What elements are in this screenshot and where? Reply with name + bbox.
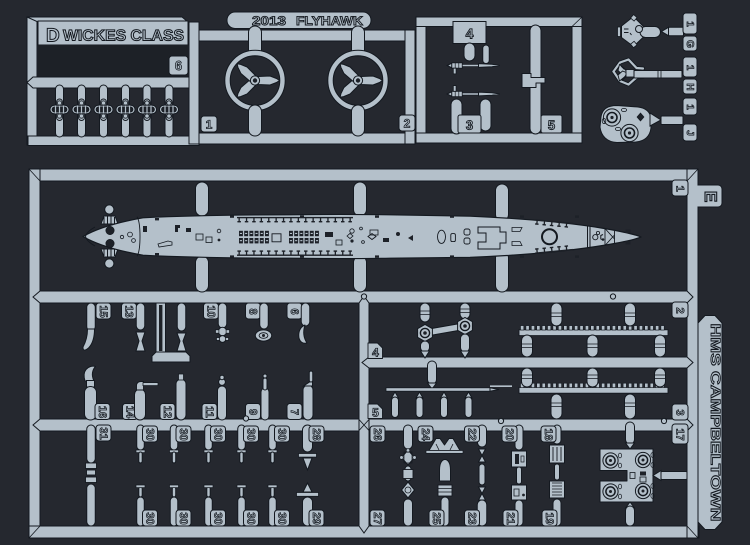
svg-text:1: 1 [684, 104, 695, 110]
svg-text:H: H [684, 83, 695, 90]
svg-text:1: 1 [674, 185, 686, 191]
svg-text:23: 23 [466, 512, 478, 524]
svg-text:13: 13 [123, 305, 135, 317]
svg-text:14: 14 [124, 406, 136, 419]
svg-text:22: 22 [466, 428, 478, 440]
svg-text:30: 30 [276, 428, 288, 440]
svg-text:8: 8 [247, 308, 259, 314]
svg-text:28: 28 [310, 428, 322, 440]
svg-text:5: 5 [372, 406, 379, 420]
svg-text:30: 30 [144, 512, 156, 524]
svg-text:18: 18 [542, 428, 554, 440]
svg-text:9: 9 [247, 409, 259, 415]
svg-text:4: 4 [466, 26, 474, 42]
svg-text:30: 30 [177, 428, 189, 440]
svg-text:2: 2 [674, 307, 686, 313]
svg-text:3: 3 [466, 118, 473, 133]
svg-text:30: 30 [212, 428, 224, 440]
svg-text:24: 24 [419, 428, 431, 441]
svg-text:1: 1 [206, 117, 213, 131]
svg-text:E: E [701, 191, 720, 202]
svg-text:HMS CAMPBELTOWN: HMS CAMPBELTOWN [708, 324, 723, 522]
svg-text:26: 26 [371, 428, 383, 440]
svg-text:31: 31 [97, 427, 109, 439]
svg-text:4: 4 [372, 346, 379, 360]
svg-text:1: 1 [684, 65, 695, 71]
svg-text:2: 2 [404, 116, 411, 130]
svg-text:20: 20 [503, 428, 515, 440]
svg-text:30: 30 [212, 512, 224, 524]
svg-text:6: 6 [175, 58, 182, 73]
svg-text:30: 30 [177, 512, 189, 524]
svg-text:15: 15 [97, 305, 109, 317]
svg-text:27: 27 [371, 512, 383, 524]
svg-text:5: 5 [548, 118, 555, 133]
svg-text:30: 30 [245, 512, 257, 524]
svg-text:25: 25 [430, 512, 442, 524]
svg-text:7: 7 [288, 409, 300, 415]
svg-text:6: 6 [288, 308, 300, 314]
svg-text:J: J [684, 130, 695, 136]
svg-text:G: G [684, 40, 695, 48]
svg-text:12: 12 [161, 406, 173, 418]
svg-text:17: 17 [674, 428, 686, 440]
svg-text:21: 21 [504, 512, 516, 524]
svg-text:11: 11 [203, 406, 215, 418]
svg-text:FLYHAWK: FLYHAWK [296, 14, 363, 28]
svg-text:19: 19 [543, 512, 555, 524]
svg-text:30: 30 [245, 428, 257, 440]
svg-text:10: 10 [205, 305, 217, 317]
svg-text:3: 3 [674, 409, 686, 415]
svg-text:D: D [46, 26, 60, 47]
svg-text:1: 1 [684, 21, 695, 27]
svg-text:16: 16 [96, 406, 108, 418]
svg-text:30: 30 [276, 512, 288, 524]
svg-text:30: 30 [144, 428, 156, 440]
svg-text:WICKES CLASS: WICKES CLASS [63, 28, 184, 45]
svg-text:29: 29 [310, 512, 322, 524]
